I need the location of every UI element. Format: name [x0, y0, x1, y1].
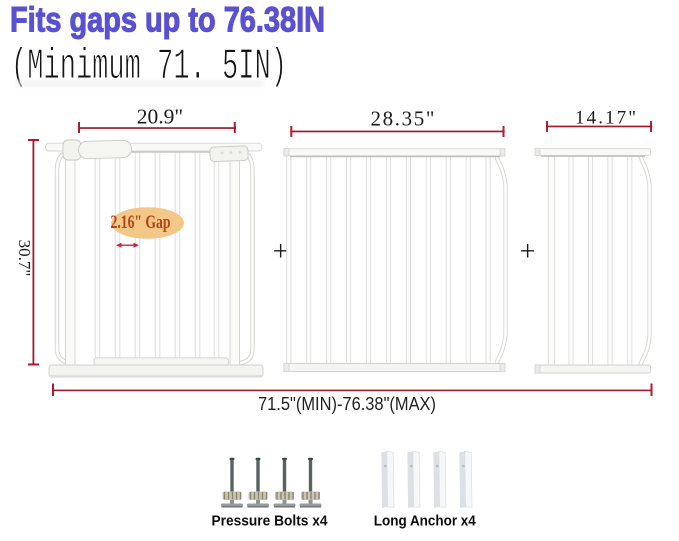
svg-text:+: + — [273, 237, 289, 268]
svg-text:Pressure Bolts x4: Pressure Bolts x4 — [212, 513, 329, 530]
svg-text:Long Anchor x4: Long Anchor x4 — [374, 513, 477, 530]
svg-text:Fits gaps up to 76.38IN: Fits gaps up to 76.38IN — [10, 0, 325, 39]
svg-text:20.9": 20.9" — [137, 105, 183, 129]
svg-text:2.16" Gap: 2.16" Gap — [111, 213, 171, 233]
svg-text:71.5"(MIN)-76.38"(MAX): 71.5"(MIN)-76.38"(MAX) — [258, 394, 436, 414]
svg-text:30.7": 30.7" — [15, 240, 34, 277]
svg-text:+: + — [520, 237, 536, 268]
